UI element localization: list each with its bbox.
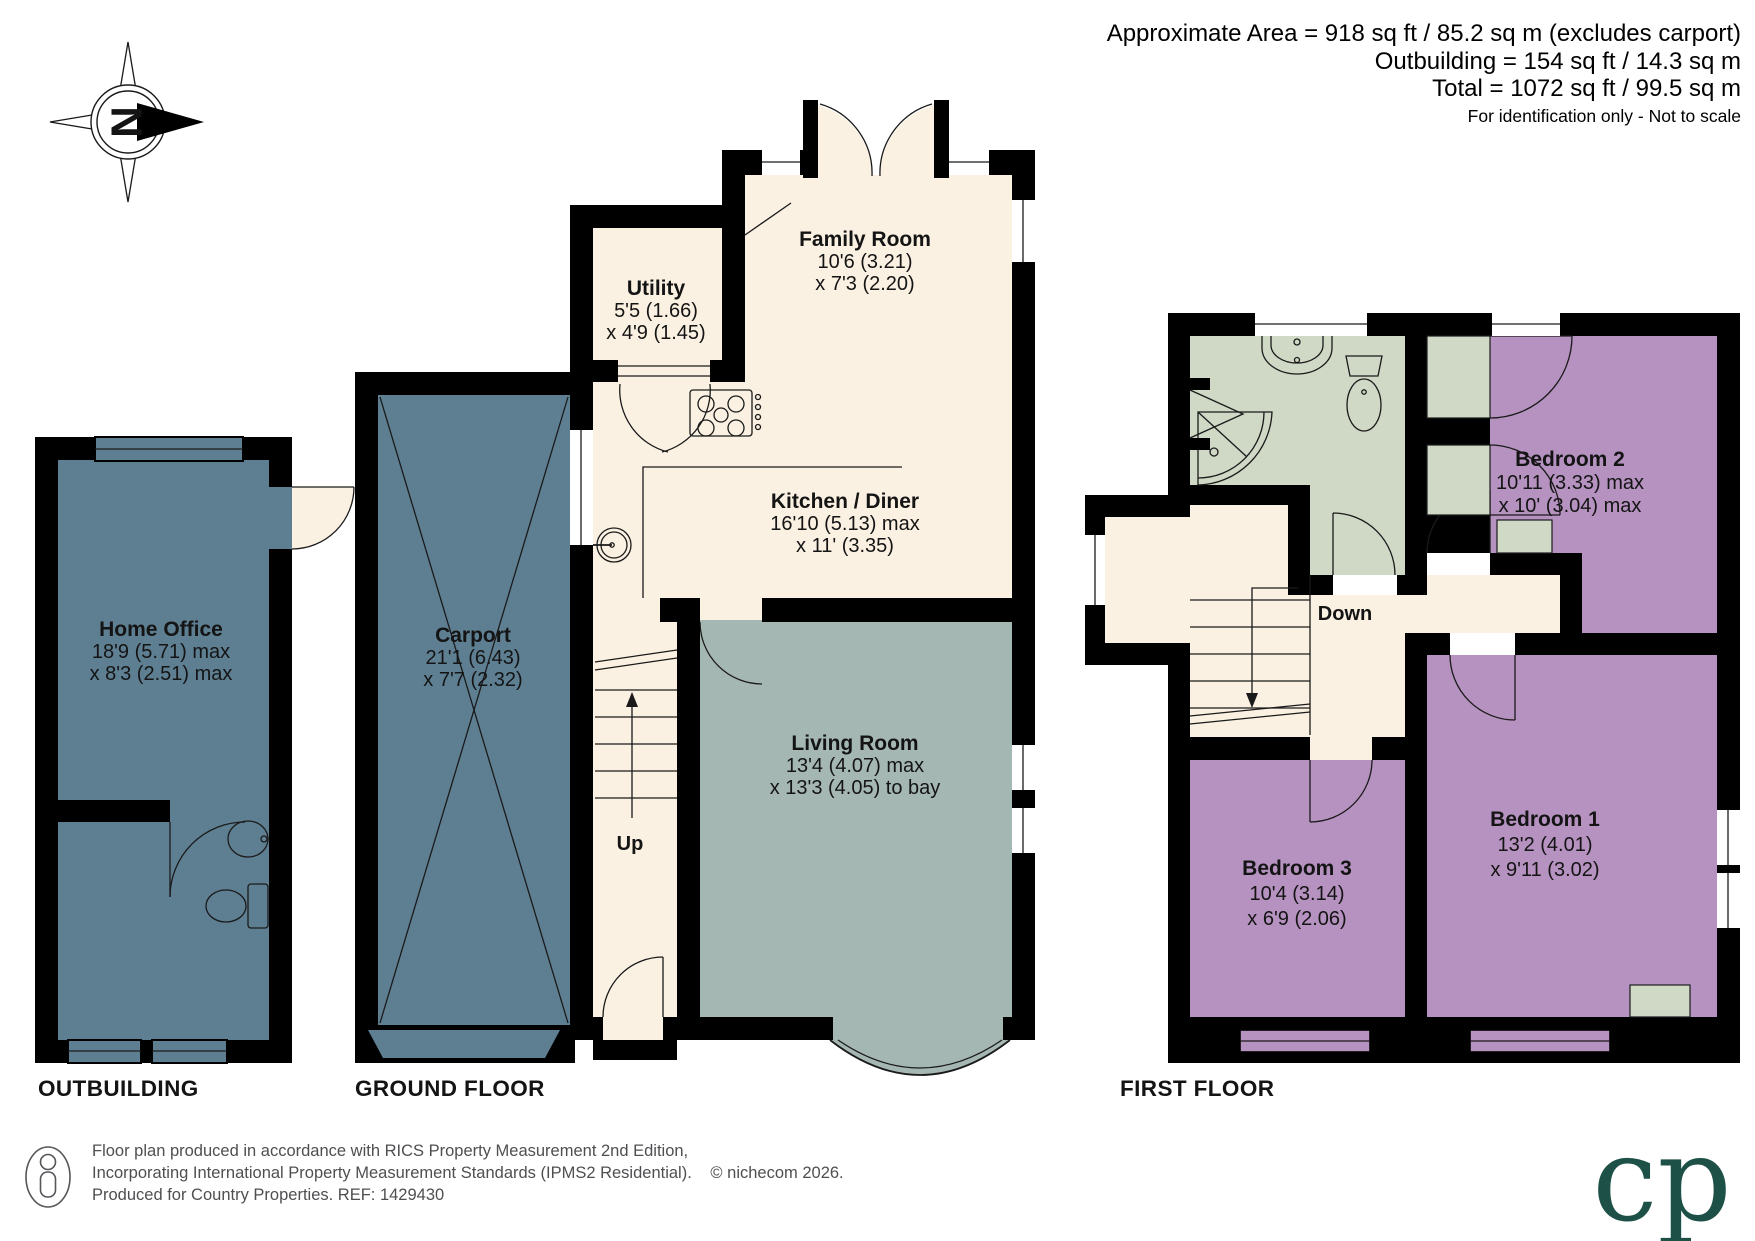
home-office-room [58,460,269,1040]
svg-text:13'4 (4.07) max: 13'4 (4.07) max [786,755,924,777]
svg-text:10'4 (3.14): 10'4 (3.14) [1250,883,1345,905]
living-room-label: Living Room 13'4 (4.07) max x 13'3 (4.05… [770,732,941,799]
carport-plan: Carport 21'1 (6.43) x 7'7 (2.32) [355,372,575,1063]
ground-floor-label: GROUND FLOOR [355,1076,545,1101]
footer-copyright: © nichecom 2026. [710,1164,843,1182]
svg-text:x 6'9 (2.06): x 6'9 (2.06) [1247,908,1346,930]
outbuilding-plan: Home Office 18'9 (5.71) max x 8'3 (2.51)… [35,437,354,1101]
stairs-up-label: Up [617,833,644,855]
svg-text:Utility: Utility [627,277,686,300]
svg-text:Bedroom 1: Bedroom 1 [1490,808,1600,831]
floor-plan-svg: N [0,0,1755,1241]
family-room-label: Family Room 10'6 (3.21) x 7'3 (2.20) [799,228,931,295]
svg-text:Kitchen / Diner: Kitchen / Diner [771,490,919,513]
svg-text:18'9 (5.71) max: 18'9 (5.71) max [92,641,230,663]
svg-text:x 8'3 (2.51) max: x 8'3 (2.51) max [90,663,233,685]
svg-text:Bedroom 2: Bedroom 2 [1515,448,1625,471]
svg-text:16'10 (5.13) max: 16'10 (5.13) max [770,513,919,535]
door-swing [292,487,354,549]
svg-text:13'2 (4.01): 13'2 (4.01) [1498,834,1593,856]
person-scale-icon [26,1147,70,1207]
svg-text:x 10' (3.04) max: x 10' (3.04) max [1499,495,1642,517]
svg-text:x 7'3 (2.20): x 7'3 (2.20) [815,273,914,295]
svg-text:10'6 (3.21): 10'6 (3.21) [818,251,913,273]
svg-text:21'1 (6.43): 21'1 (6.43) [426,647,521,669]
svg-text:5'5 (1.66): 5'5 (1.66) [614,300,698,322]
french-doors [818,104,934,176]
footer-line3: Produced for Country Properties. REF: 14… [92,1184,844,1206]
svg-text:x 11' (3.35): x 11' (3.35) [796,535,894,557]
footer-line2-wrap: Incorporating International Property Mea… [92,1162,844,1184]
svg-text:x 9'11 (3.02): x 9'11 (3.02) [1490,859,1599,881]
cp-logo: cp [1592,1113,1731,1241]
first-floor-label: FIRST FLOOR [1120,1076,1274,1101]
carport-label: Carport 21'1 (6.43) x 7'7 (2.32) [423,624,522,691]
svg-text:10'11 (3.33) max: 10'11 (3.33) max [1496,472,1644,494]
hallway [593,622,677,1040]
home-office-label: Home Office 18'9 (5.71) max x 8'3 (2.51)… [90,618,233,685]
footer-smallprint: Floor plan produced in accordance with R… [92,1140,844,1206]
footer-line2: Incorporating International Property Mea… [92,1164,692,1182]
bedroom-3-label: Bedroom 3 10'4 (3.14) x 6'9 (2.06) [1242,857,1352,930]
footer-line1: Floor plan produced in accordance with R… [92,1140,844,1162]
svg-text:Living Room: Living Room [791,732,918,755]
compass-north-letter: N [102,106,151,138]
first-floor-plan: Down Bedroom 2 10'11 (3.33) max x 10' (3… [1085,313,1740,1101]
svg-text:x 7'7 (2.32): x 7'7 (2.32) [423,669,522,691]
svg-text:Family Room: Family Room [799,228,931,251]
outbuilding-floor-label: OUTBUILDING [38,1076,199,1101]
stairs-down-label: Down [1318,603,1372,625]
compass-icon: N [50,42,204,202]
svg-text:Bedroom 3: Bedroom 3 [1242,857,1352,880]
bay-window-bow [830,1015,1010,1075]
svg-text:x 4'9 (1.45): x 4'9 (1.45) [606,322,705,344]
svg-text:Home Office: Home Office [99,618,223,641]
svg-text:x 13'3 (4.05) to bay: x 13'3 (4.05) to bay [770,777,941,799]
bedroom-1-label: Bedroom 1 13'2 (4.01) x 9'11 (3.02) [1490,808,1600,881]
floorplan-page: Approximate Area = 918 sq ft / 85.2 sq m… [0,0,1755,1241]
svg-text:Carport: Carport [435,624,511,647]
bedroom-2-label: Bedroom 2 10'11 (3.33) max x 10' (3.04) … [1496,448,1644,517]
living-room [700,620,1012,1017]
